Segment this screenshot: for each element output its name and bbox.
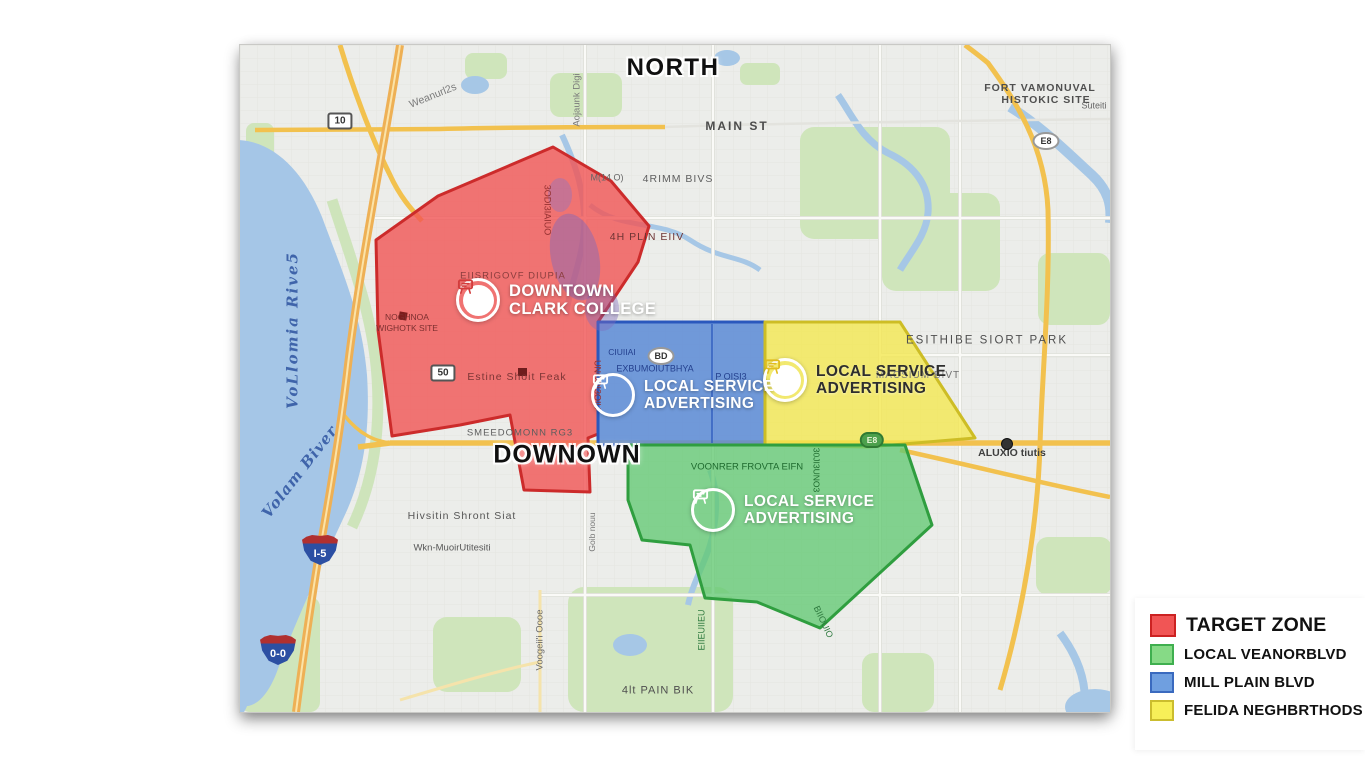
street-label: Weanurl2s: [408, 82, 458, 110]
zone-label-text: LOCAL SERVICEADVERTISING: [644, 378, 774, 413]
street-label: FORT VAMONUVAL: [984, 83, 1096, 94]
billboard-icon: [763, 358, 782, 375]
billboard-icon: [691, 488, 710, 505]
highway-shield: 10: [327, 113, 352, 130]
street-label: CIUIIAI: [608, 348, 635, 357]
zone-label-line1: DOWNTOWN: [509, 282, 656, 300]
street-label: 30JI3UNO3: [812, 448, 821, 492]
map-overlay: NORTHDOWNOWNMAIN STWeanurl2sAojaunk Digi…: [240, 45, 1110, 712]
legend-item: TARGET ZONE: [1150, 614, 1365, 637]
legend-label: FELIDA NEGHBRTHODS: [1184, 702, 1363, 719]
zone-icon-core: [463, 285, 494, 316]
legend-swatch: [1150, 672, 1174, 693]
zone-label-yellow: LOCAL SERVICEADVERTISING: [763, 358, 946, 402]
marker-dot: [1001, 438, 1013, 450]
legend-item: MILL PLAIN BLVD: [1150, 672, 1365, 693]
zone-label-line2: ADVERTISING: [744, 510, 874, 527]
street-label: EIIEUIIEU: [698, 609, 707, 650]
zone-label-line2: CLARK COLLEGE: [509, 300, 656, 318]
street-label: HISTOKIC SITE: [1001, 95, 1090, 106]
street-label: Aojaunk Digi: [572, 73, 582, 126]
downtown-label: DOWNOWN: [493, 443, 640, 468]
interstate-shield: 0-0: [260, 635, 296, 665]
zone-icon-yellow: [763, 358, 807, 402]
street-label: BIIOUIO: [812, 605, 835, 640]
legend-swatch: [1150, 614, 1176, 637]
map-card: NORTHDOWNOWNMAIN STWeanurl2sAojaunk Digi…: [240, 45, 1110, 712]
zone-label-line1: LOCAL SERVICE: [816, 363, 946, 380]
billboard-icon: [591, 373, 610, 390]
street-label: Hivsitin Shront Siat: [408, 511, 517, 522]
zone-icon-red: [456, 278, 500, 322]
street-label: Wkn-MuoirUtitesiti: [413, 543, 490, 553]
river-label: Volam Biver: [260, 423, 341, 521]
zone-label-line2: ADVERTISING: [816, 380, 946, 397]
street-label: Estine Shoit Feak: [467, 372, 566, 383]
street-label: VOONRER FROVTA EIFN: [691, 462, 803, 472]
zone-label-line1: LOCAL SERVICE: [744, 493, 874, 510]
zone-label-green: LOCAL SERVICEADVERTISING: [691, 488, 874, 532]
legend-item: LOCAL VEANORBLVD: [1150, 644, 1365, 665]
legend-swatch: [1150, 700, 1174, 721]
zone-label-line1: LOCAL SERVICE: [644, 378, 774, 395]
street-label: 4lt PAIN BIK: [622, 686, 694, 697]
street-label: Voogeii'i Oooe: [535, 610, 545, 671]
street-label: M(14 O): [590, 174, 623, 183]
zone-label-red: DOWNTOWNCLARK COLLEGE: [456, 278, 656, 322]
highway-shield: 50: [430, 365, 455, 382]
zone-label-text: DOWNTOWNCLARK COLLEGE: [509, 282, 656, 319]
highway-shield: E8: [860, 432, 884, 448]
street-label: 4RIMM BIVS: [643, 174, 714, 185]
street-label: MAIN ST: [705, 120, 768, 132]
street-label: 4H PLIN EIIV: [610, 232, 684, 243]
street-label: SMEEDOMONN RG3: [467, 428, 573, 438]
legend: TARGET ZONELOCAL VEANORBLVDMILL PLAIN BL…: [1135, 598, 1365, 750]
street-label: 3ODI3IAIUO: [543, 185, 552, 236]
highway-shield: BD: [648, 347, 675, 365]
river-label: VoLlomia Rive5: [286, 251, 301, 409]
zone-label-text: LOCAL SERVICEADVERTISING: [744, 493, 874, 528]
zone-icon-core: [770, 365, 801, 396]
street-label: ALUXIO tiutis: [978, 448, 1046, 459]
zone-label-line2: ADVERTISING: [644, 395, 774, 412]
billboard-icon: [456, 278, 475, 295]
zone-icon-blue: [591, 373, 635, 417]
north-label: NORTH: [627, 56, 720, 80]
street-label: NOGHNOA: [385, 313, 429, 322]
zone-icon-green: [691, 488, 735, 532]
zone-label-blue: LOCAL SERVICEADVERTISING: [591, 373, 774, 417]
legend-label: MILL PLAIN BLVD: [1184, 674, 1315, 691]
legend-label: TARGET ZONE: [1186, 614, 1327, 637]
legend-swatch: [1150, 644, 1174, 665]
street-label: Goib nouu: [588, 512, 597, 551]
interstate-shield: I-5: [302, 535, 338, 565]
legend-item: FELIDA NEGHBRTHODS: [1150, 700, 1365, 721]
legend-label: LOCAL VEANORBLVD: [1184, 646, 1347, 663]
street-label: Suteiti: [1081, 102, 1106, 111]
zone-label-text: LOCAL SERVICEADVERTISING: [816, 363, 946, 398]
zone-icon-core: [698, 495, 729, 526]
zone-icon-core: [598, 380, 629, 411]
street-label: WIGHOTK SITE: [376, 324, 438, 333]
highway-shield: E8: [1033, 132, 1060, 150]
street-label: ESITHIBE SIORT PARK: [906, 335, 1068, 347]
